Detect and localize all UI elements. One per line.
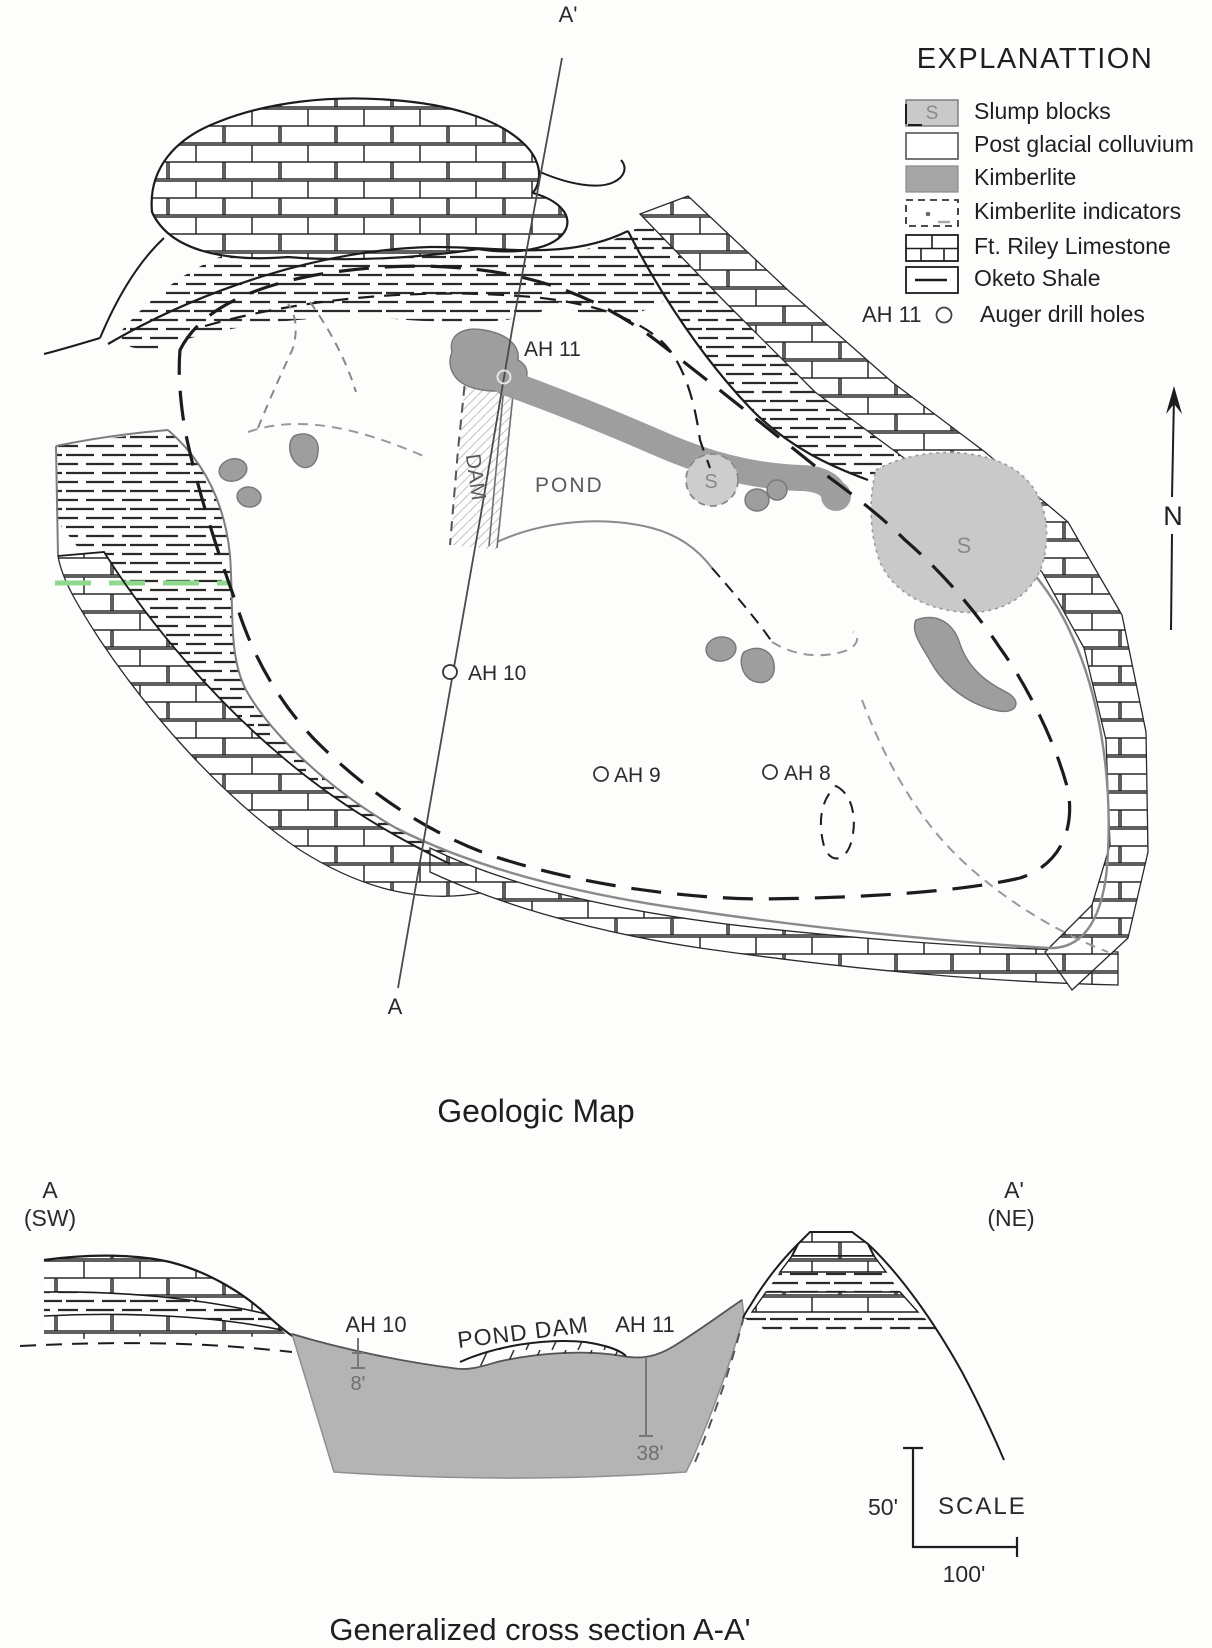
legend-drill-example: AH 11	[862, 302, 922, 327]
xs-left-letter: A	[42, 1177, 58, 1203]
xs-ah11-depth: 38'	[636, 1442, 663, 1465]
legend-item-label: Kimberlite indicators	[974, 198, 1181, 224]
label-ah8: AH 8	[784, 762, 831, 785]
xs-left-bank	[20, 1256, 294, 1352]
kimberlite-blob	[767, 480, 787, 500]
kimberlite-blob	[290, 434, 318, 468]
xs-left-direction: (SW)	[24, 1205, 76, 1231]
xs-hill-brick-3	[752, 1292, 918, 1312]
legend-drill-circle-icon	[937, 308, 952, 323]
drill-hole-ah10	[443, 665, 457, 679]
xs-left-base-dashed	[20, 1343, 292, 1352]
label-ah10: AH 10	[468, 662, 526, 685]
legend-item-label: Slump blocks	[974, 98, 1111, 124]
legend-swatch-kimberlite	[906, 166, 958, 192]
indicator-dashed-line	[712, 568, 772, 642]
xs-hill-shale-1	[766, 1272, 900, 1292]
xs-label-ah11: AH 11	[615, 1312, 675, 1337]
geologic-figure: A' A AH 11 AH 10 AH 9 AH 8 POND DAM S S …	[0, 0, 1212, 1648]
label-slump-s-pond: S	[704, 471, 717, 493]
pond-shore-line	[497, 521, 712, 568]
indicator-dashed-line	[862, 700, 1108, 952]
xs-hill-cap-brick	[792, 1232, 874, 1256]
legend-swatch-indicators	[906, 200, 958, 226]
limestone-island	[152, 98, 568, 259]
section-label-a-prime: A'	[559, 2, 578, 27]
drill-hole-ah8	[763, 765, 777, 779]
label-ah11: AH 11	[524, 338, 581, 361]
legend-swatch-indicators-dot	[926, 212, 931, 217]
legend-item-label: Auger drill holes	[980, 301, 1145, 327]
legend-swatch-colluvium	[906, 133, 958, 159]
kimberlite-blob	[235, 485, 262, 509]
scale-horizontal-value: 100'	[943, 1561, 986, 1587]
kimberlite-band-end	[821, 481, 851, 511]
xs-hill-brick-2	[780, 1256, 886, 1272]
kimberlite-blob	[741, 648, 774, 682]
legend-item-label: Kimberlite	[974, 164, 1076, 190]
label-slump-s-large: S	[957, 533, 972, 558]
legend-item-label: Ft. Riley Limestone	[974, 233, 1171, 259]
legend: EXPLANATTION S Slump blocks Post glacial…	[862, 43, 1194, 327]
kimberlite-blob	[704, 635, 737, 663]
kimberlite-blob	[745, 489, 769, 511]
indicator-dashed-line	[248, 424, 428, 458]
limestone-bottom	[430, 848, 1118, 985]
indicator-dashed-line	[772, 632, 857, 655]
scale-bar: 50' SCALE 100'	[868, 1448, 1027, 1587]
north-label: N	[1163, 501, 1183, 531]
label-pond: POND	[535, 474, 604, 497]
indicator-dashed-pocket	[821, 786, 854, 858]
label-ah9: AH 9	[614, 764, 661, 787]
xs-ah10-depth: 8'	[351, 1373, 366, 1395]
section-caption: Generalized cross section A-A'	[329, 1612, 750, 1647]
xs-right-letter: A'	[1004, 1177, 1024, 1203]
legend-swatch-slump-letter: S	[926, 103, 939, 124]
legend-item-label: Post glacial colluvium	[974, 131, 1194, 157]
scale-vertical-value: 50'	[868, 1494, 898, 1520]
xs-hill-shale-2	[744, 1312, 942, 1334]
kimberlite-blob-banana	[914, 617, 1015, 711]
legend-item-label: Oketo Shale	[974, 265, 1101, 291]
xs-right-direction: (NE)	[987, 1205, 1034, 1231]
outline-hook-right	[540, 160, 625, 186]
legend-title: EXPLANATTION	[917, 43, 1154, 75]
xs-label-ah10: AH 10	[345, 1312, 406, 1337]
cross-section: A (SW) A' (NE)	[20, 1177, 1035, 1587]
drill-hole-ah9	[594, 767, 608, 781]
xs-right-hill	[743, 1232, 1004, 1460]
north-arrow-icon: N	[1163, 386, 1183, 630]
scale-title: SCALE	[938, 1493, 1027, 1520]
map-caption: Geologic Map	[437, 1093, 634, 1129]
kimberlite-blob	[217, 456, 250, 484]
section-label-a: A	[388, 994, 403, 1019]
